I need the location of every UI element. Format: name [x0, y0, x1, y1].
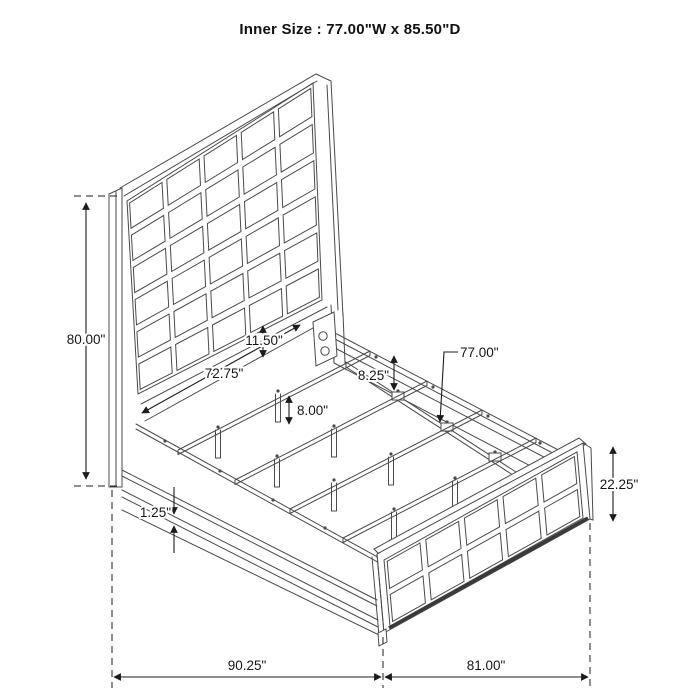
rail-height-label: 8.25" — [358, 368, 389, 383]
headboard-width-label: 72.75" — [205, 366, 244, 381]
screw-dot — [431, 385, 434, 388]
overall-depth-label: 90.25" — [228, 658, 267, 673]
screw-dot — [218, 469, 221, 472]
screw-dot — [323, 526, 326, 529]
screw-dot — [276, 389, 279, 392]
headboard-height-label: 80.00" — [67, 332, 106, 347]
headboard-tufted-grid — [130, 88, 320, 389]
screw-dot — [389, 452, 392, 455]
screw-dot — [486, 414, 489, 417]
panel-gap-label: 11.50" — [245, 333, 283, 348]
slat-length-leader — [440, 352, 458, 422]
screw-dot — [453, 476, 456, 479]
footboard-height-label: 22.25" — [600, 477, 639, 492]
rail-trim-label: 1.25" — [140, 505, 171, 520]
slat-length-label: 77.00" — [460, 345, 499, 360]
footboard — [372, 438, 593, 646]
bed-diagram-canvas: 80.00" 72.75" 11.50" 8.25" 8.00" 77.00" … — [0, 0, 700, 700]
bed-dimension-diagram-page: Inner Size : 77.00"W x 85.50"D — [0, 0, 700, 700]
screw-dot — [332, 424, 335, 427]
screw-dot — [374, 355, 377, 358]
screw-dot — [445, 420, 448, 423]
left-side-rail — [122, 470, 381, 636]
screw-dot — [275, 454, 278, 457]
screw-dot — [538, 441, 541, 444]
screw-dot — [493, 450, 496, 453]
screw-dot — [332, 478, 335, 481]
leg-height-label: 8.00" — [297, 403, 328, 418]
overall-width-label: 81.00" — [467, 658, 506, 673]
screw-dot — [271, 498, 274, 501]
screw-dot — [163, 439, 166, 442]
rail-bracket-plate — [313, 312, 337, 366]
left-rail-cleat — [136, 424, 383, 565]
screw-dot — [396, 389, 399, 392]
screw-dot — [392, 507, 395, 510]
screw-dot — [216, 425, 219, 428]
right-side-rail — [333, 332, 566, 483]
